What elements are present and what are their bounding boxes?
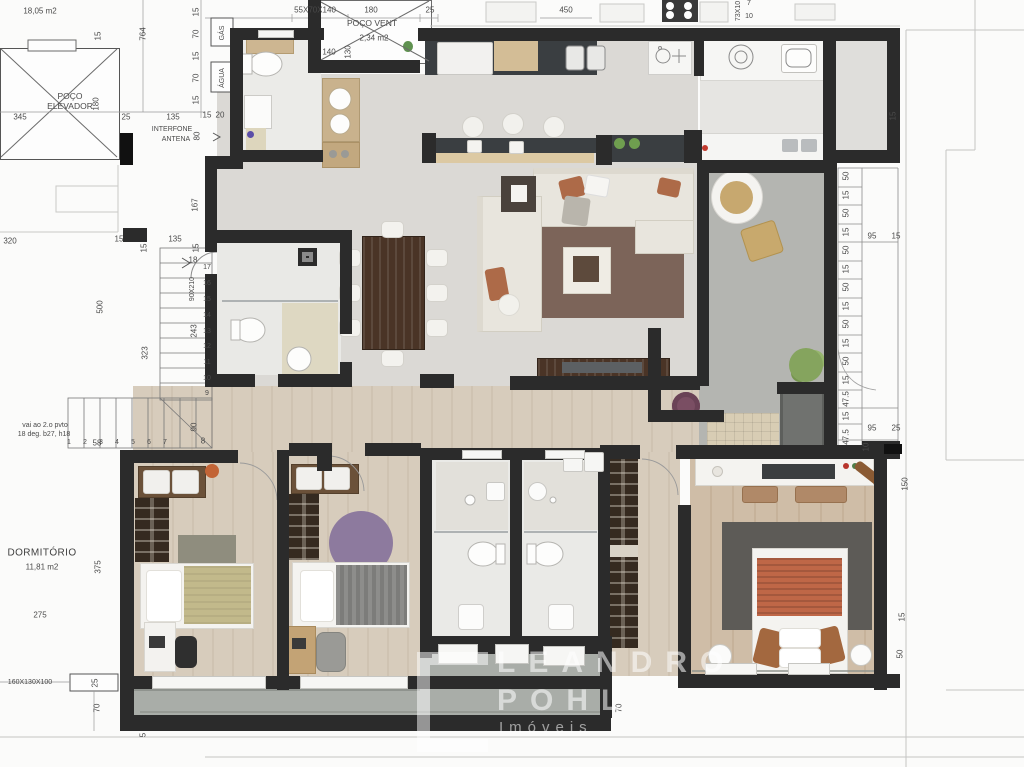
cabinet-size-label: 55X70X140 xyxy=(294,5,336,14)
bedroom2-desk xyxy=(288,626,316,674)
counter-plant xyxy=(403,41,413,52)
lavabo-accent xyxy=(247,131,254,138)
bar-stool-3 xyxy=(543,116,565,138)
stove xyxy=(648,41,692,75)
dim: 50 xyxy=(841,320,850,329)
egg-chair-cushion xyxy=(720,181,753,214)
dim: 140 xyxy=(322,47,335,56)
stair-number: 6 xyxy=(147,439,151,447)
bedroom1-wardrobe xyxy=(135,498,169,562)
stair-number: 4 xyxy=(115,439,119,447)
niche-washer-2 xyxy=(584,452,604,472)
watermark-line1: LEANDRO xyxy=(497,646,736,680)
dim: 10 xyxy=(745,13,753,21)
dim: 50 xyxy=(841,246,850,255)
laundry-basket-2 xyxy=(801,139,817,152)
dim: 375 xyxy=(93,560,102,573)
cooktop-neighbor xyxy=(662,0,698,22)
counter-wood-section xyxy=(494,41,538,71)
sofa-chaise xyxy=(635,220,694,254)
bed2-blanket xyxy=(336,565,407,625)
dim: 15 xyxy=(841,228,850,237)
dresser-cup xyxy=(712,466,723,477)
bedroom1-laptop xyxy=(149,636,165,648)
dim: 90 xyxy=(189,423,198,432)
bathB-shower-head xyxy=(528,482,547,501)
dim: 70 xyxy=(191,74,200,83)
dim: 25 xyxy=(90,679,99,688)
stair-number-8: 8 xyxy=(201,436,205,445)
coffee-table-tray xyxy=(573,256,599,282)
dim: 20 xyxy=(216,110,225,119)
master-duvet xyxy=(757,558,842,616)
stove-size-label: 73X10 xyxy=(735,1,743,21)
poco-vent-area: 2,34 m2 xyxy=(360,33,389,42)
stair-number: 13 xyxy=(203,328,211,336)
dim: 25 xyxy=(426,5,435,14)
dim: 15 xyxy=(841,376,850,385)
master-bench-2 xyxy=(795,486,847,503)
nightstand-right xyxy=(850,644,872,666)
stair-number: 12 xyxy=(203,343,211,351)
bed2-pillow xyxy=(300,570,334,622)
window-bathA xyxy=(462,450,502,459)
dim: 5 xyxy=(138,733,147,737)
dim: 15 xyxy=(841,339,850,348)
dim: 70 xyxy=(92,704,101,713)
stair-number: 10 xyxy=(203,375,211,383)
red-item xyxy=(702,145,708,151)
bedroom2-wardrobe xyxy=(289,494,319,560)
bedroom1-rug xyxy=(178,535,236,565)
dining-chair xyxy=(426,319,448,337)
dim: 95 xyxy=(868,231,877,240)
stair-note-1: vai ao 2.o pvto xyxy=(22,422,68,430)
stair-note-2: 18 deg. b27, h18 xyxy=(18,431,71,439)
dim: 50 xyxy=(841,283,850,292)
bath2-shower-mat xyxy=(282,303,338,380)
window-master-2 xyxy=(788,663,830,675)
watermark-logo xyxy=(417,652,488,752)
bathB-sink xyxy=(548,604,574,630)
dim: 15 xyxy=(888,112,897,121)
sofa-throw-gray xyxy=(561,195,591,226)
plant-pot-2 xyxy=(629,138,640,149)
master-tv xyxy=(762,464,835,479)
master-wardrobe-shelf xyxy=(608,545,638,557)
dim: 323 xyxy=(140,346,149,359)
dim: 15 xyxy=(841,412,850,421)
dim: 47.5 xyxy=(841,391,850,407)
dim: 50 xyxy=(895,650,904,659)
stair-number: 15 xyxy=(203,296,211,304)
dim: 15 xyxy=(203,110,212,119)
dim: 130 xyxy=(343,45,352,58)
dim: 180 xyxy=(91,97,100,110)
sofa-top-section xyxy=(533,168,694,227)
dim: 50 xyxy=(841,209,850,218)
sink-counter xyxy=(560,40,597,75)
dim: 135 xyxy=(168,234,181,243)
bed1-cab-door-1 xyxy=(143,470,170,494)
dining-chair xyxy=(426,249,448,267)
dresser-item-red xyxy=(843,463,849,469)
cabinet-size-label-2: 160X130X100 xyxy=(8,679,52,687)
terrace-mat xyxy=(780,390,825,453)
dim: 345 xyxy=(13,112,26,121)
stair-number: 17 xyxy=(203,264,211,272)
dining-table xyxy=(362,236,425,350)
dim: 275 xyxy=(33,610,46,619)
stair-number: 14 xyxy=(203,312,211,320)
side-table-top xyxy=(511,185,527,202)
door-size-label: 90X210 xyxy=(189,277,197,301)
watermark-line3: Imóveis xyxy=(499,719,593,736)
dim: 180 xyxy=(364,5,377,14)
dining-chair xyxy=(426,284,448,302)
dim: 15 xyxy=(191,8,200,17)
bath2-duct xyxy=(298,248,317,266)
dim: 7 xyxy=(747,0,751,8)
bathA-shower-head xyxy=(486,482,505,501)
dim: 80 xyxy=(192,132,201,141)
dim: 150 xyxy=(900,477,909,490)
laundry-basket-1 xyxy=(782,139,798,152)
dim: 320 xyxy=(3,236,16,245)
stair-number: 9 xyxy=(205,390,209,398)
stair-number: 2 xyxy=(83,439,87,447)
dim: 50 xyxy=(841,357,850,366)
orange-ball xyxy=(205,464,219,478)
master-pillow-1 xyxy=(779,628,821,648)
dim: 25 xyxy=(122,112,131,121)
area-label-neighbor: 18,05 m2 xyxy=(23,6,56,15)
side-room-floor xyxy=(836,40,887,152)
bedroom1-chair xyxy=(175,636,197,668)
dim: 50 xyxy=(841,172,850,181)
bar-item-1 xyxy=(467,140,482,153)
room-label-dormitorio: DORMITÓRIO xyxy=(8,547,77,559)
stair-number: 5 xyxy=(131,439,135,447)
watermark-line2: POHL xyxy=(497,684,632,718)
room-label-poco-vent: POÇO VENT xyxy=(347,19,397,29)
laundry-tub xyxy=(781,44,817,73)
bar-stool-2 xyxy=(502,113,524,135)
master-bench-1 xyxy=(742,486,778,503)
dim: 15 xyxy=(93,32,102,41)
dim: 70 xyxy=(191,30,200,39)
window-bedroom2 xyxy=(300,676,408,689)
terrace-plant xyxy=(789,348,823,382)
tv-panel xyxy=(562,362,642,373)
fridge xyxy=(437,42,493,75)
bar-stool-1 xyxy=(462,116,484,138)
dim: 500 xyxy=(95,300,104,313)
dim: 167 xyxy=(190,198,199,211)
dim: 15 xyxy=(841,302,850,311)
window-bedroom1 xyxy=(152,676,266,689)
window-bathB xyxy=(545,450,585,459)
bed1-blanket xyxy=(184,566,251,624)
sofa-pillow-white xyxy=(583,174,610,198)
room-label-poco-elevador: POÇO ELEVADOR xyxy=(47,92,93,112)
bedroom2-chair xyxy=(316,632,346,672)
antena-label: ANTENA xyxy=(162,136,190,144)
dim: 243 xyxy=(189,324,198,337)
dim: 15 xyxy=(115,234,124,243)
bedroom2-laptop xyxy=(292,638,306,649)
sofa-pillow-round xyxy=(498,294,520,316)
stair-number: 3 xyxy=(99,439,103,447)
dim: 15 xyxy=(897,613,906,622)
dining-chair xyxy=(381,350,404,367)
floor-plan: 18,05 m2 POÇO ELEVADOR 345 180 25 764 15… xyxy=(0,0,1024,767)
dim: 15 xyxy=(191,52,200,61)
bar-item-2 xyxy=(509,141,524,154)
plant-pot-1 xyxy=(614,138,625,149)
island-vanity xyxy=(322,78,360,142)
lavabo-vanity xyxy=(244,95,272,129)
interfone-label: INTERFONE xyxy=(152,126,192,134)
stair-number: 11 xyxy=(203,359,210,367)
stair-number: 1 xyxy=(67,439,71,447)
gas-label: GÁS xyxy=(219,26,227,41)
dim: 95 xyxy=(868,423,877,432)
bar-counter-wood xyxy=(436,153,594,163)
window-lavabo xyxy=(258,30,294,38)
bed1-cab-door-2 xyxy=(172,470,199,494)
dim: 25 xyxy=(892,423,901,432)
island-lower xyxy=(322,142,360,168)
dim: 10 xyxy=(861,443,870,452)
stair-number: 7 xyxy=(163,439,167,447)
bathA-sink xyxy=(458,604,484,630)
dim: 135 xyxy=(166,112,179,121)
dim: 47.5 xyxy=(841,429,850,445)
dining-chair xyxy=(381,221,404,238)
dim: 450 xyxy=(559,5,572,14)
stair-number-18: 18 xyxy=(189,255,198,264)
dim: 15 xyxy=(841,191,850,200)
agua-label: ÁGUA xyxy=(219,68,227,88)
dim: 764 xyxy=(138,27,147,40)
dim: 15 xyxy=(892,231,901,240)
bed1-pillow xyxy=(146,570,182,622)
stair-number: 16 xyxy=(203,280,211,288)
dim: 15 xyxy=(841,265,850,274)
dim: 15 xyxy=(139,244,148,253)
dim: 15 xyxy=(191,96,200,105)
dim: 15 xyxy=(191,244,200,253)
dormitorio-area: 11,81 m2 xyxy=(26,562,59,571)
